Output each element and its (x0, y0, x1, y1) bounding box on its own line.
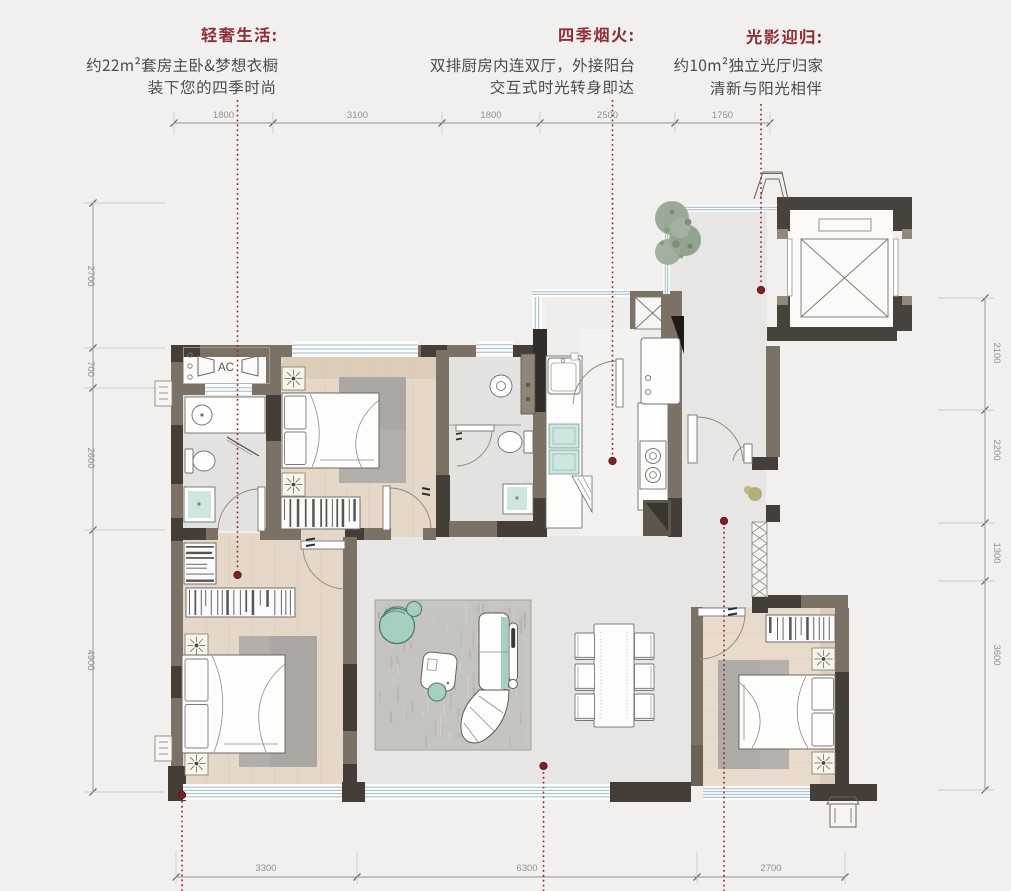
svg-text:3300: 3300 (255, 863, 276, 874)
svg-text:1300: 1300 (991, 542, 1002, 563)
svg-text:2200: 2200 (991, 439, 1002, 460)
svg-text:1800: 1800 (213, 110, 234, 121)
svg-text:700: 700 (85, 361, 96, 377)
svg-text:1750: 1750 (712, 110, 733, 121)
svg-text:2700: 2700 (760, 863, 781, 874)
svg-text:AC: AC (218, 362, 234, 374)
svg-text:2500: 2500 (597, 110, 618, 121)
svg-text:2100: 2100 (991, 342, 1002, 363)
svg-text:3600: 3600 (991, 644, 1002, 665)
svg-text:4900: 4900 (85, 649, 96, 670)
svg-text:2700: 2700 (85, 265, 96, 286)
svg-text:2600: 2600 (85, 447, 96, 468)
svg-text:1800: 1800 (480, 110, 501, 121)
svg-text:6300: 6300 (516, 863, 537, 874)
svg-text:3100: 3100 (347, 110, 368, 121)
